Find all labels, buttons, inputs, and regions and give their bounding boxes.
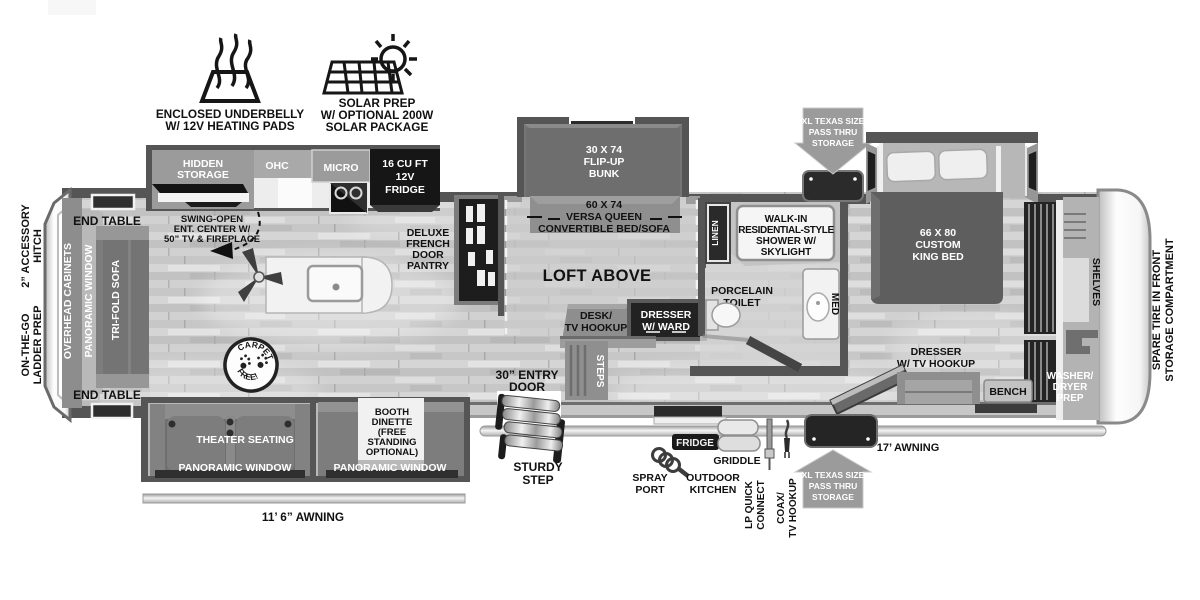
svg-text:PREP: PREP: [1056, 393, 1084, 404]
svg-text:OPTIONAL): OPTIONAL): [366, 447, 418, 458]
svg-text:DESK/: DESK/: [580, 310, 612, 322]
svg-text:FLIP-UP: FLIP-UP: [584, 156, 625, 168]
svg-text:16 CU FT: 16 CU FT: [382, 158, 428, 170]
svg-text:CONNECT: CONNECT: [756, 480, 767, 529]
svg-text:STORAGE COMPARTMENT: STORAGE COMPARTMENT: [1164, 238, 1176, 381]
svg-text:STEP: STEP: [522, 473, 553, 487]
svg-text:PASS THRU: PASS THRU: [809, 127, 858, 137]
svg-text:THEATER SEATING: THEATER SEATING: [196, 434, 294, 446]
svg-text:VERSA QUEEN: VERSA QUEEN: [566, 211, 642, 223]
svg-text:XL TEXAS SIZE: XL TEXAS SIZE: [802, 470, 865, 480]
svg-text:PORCELAIN: PORCELAIN: [711, 285, 773, 297]
svg-text:17’ AWNING: 17’ AWNING: [877, 442, 940, 454]
svg-text:STURDY: STURDY: [513, 460, 562, 474]
svg-text:END TABLE: END TABLE: [73, 214, 141, 228]
svg-text:STORAGE: STORAGE: [812, 138, 854, 148]
svg-text:FRIDGE: FRIDGE: [676, 438, 714, 449]
svg-text:XL TEXAS SIZE: XL TEXAS SIZE: [802, 116, 865, 126]
svg-text:SPARE TIRE IN FRONT: SPARE TIRE IN FRONT: [1151, 250, 1163, 370]
svg-text:HITCH: HITCH: [32, 229, 44, 263]
svg-text:LP QUICK: LP QUICK: [744, 480, 755, 528]
svg-text:ON-THE-GO: ON-THE-GO: [20, 313, 32, 376]
svg-text:COAX/: COAX/: [776, 492, 787, 524]
svg-text:SKYLIGHT: SKYLIGHT: [761, 247, 812, 258]
svg-text:STORAGE: STORAGE: [812, 492, 854, 502]
svg-text:W/ WARD: W/ WARD: [642, 321, 690, 333]
svg-text:PANORAMIC WINDOW: PANORAMIC WINDOW: [179, 462, 292, 474]
svg-text:LOFT ABOVE: LOFT ABOVE: [543, 267, 652, 285]
svg-text:30 X 74: 30 X 74: [586, 144, 622, 156]
svg-text:GRIDDLE: GRIDDLE: [713, 455, 760, 467]
svg-text:DRYER: DRYER: [1053, 382, 1088, 393]
svg-text:60 X 74: 60 X 74: [586, 199, 622, 211]
svg-text:TV HOOKUP: TV HOOKUP: [788, 478, 799, 538]
svg-text:END TABLE: END TABLE: [73, 388, 141, 402]
svg-text:SHOWER W/: SHOWER W/: [756, 236, 816, 247]
svg-text:PANORAMIC WINDOW: PANORAMIC WINDOW: [83, 244, 95, 357]
svg-text:CONVERTIBLE BED/SOFA: CONVERTIBLE BED/SOFA: [538, 223, 670, 235]
svg-text:11’ 6” AWNING: 11’ 6” AWNING: [262, 510, 344, 524]
svg-text:SPRAY: SPRAY: [632, 472, 667, 484]
svg-text:CUSTOM: CUSTOM: [915, 239, 961, 251]
svg-text:STORAGE: STORAGE: [177, 169, 229, 181]
svg-text:OHC: OHC: [265, 160, 289, 172]
svg-text:SOLAR PACKAGE: SOLAR PACKAGE: [326, 120, 429, 134]
svg-text:DRESSER: DRESSER: [911, 346, 962, 358]
svg-text:OVERHEAD CABINETS: OVERHEAD CABINETS: [62, 243, 74, 359]
svg-text:BUNK: BUNK: [589, 168, 620, 180]
svg-text:OUTDOOR: OUTDOOR: [686, 472, 740, 484]
svg-text:STEPS: STEPS: [594, 355, 605, 388]
svg-text:W/ TV HOOKUP: W/ TV HOOKUP: [897, 358, 975, 370]
svg-text:FRIDGE: FRIDGE: [385, 184, 425, 196]
svg-text:WALK-IN: WALK-IN: [765, 214, 808, 225]
svg-text:LINEN: LINEN: [710, 220, 720, 246]
svg-text:66 X 80: 66 X 80: [920, 227, 956, 239]
svg-text:WASHER/: WASHER/: [1047, 371, 1094, 382]
svg-text:TRI-FOLD SOFA: TRI-FOLD SOFA: [110, 259, 122, 340]
svg-text:PORT: PORT: [635, 484, 665, 496]
svg-text:PANORAMIC WINDOW: PANORAMIC WINDOW: [334, 462, 447, 474]
svg-text:TV HOOKUP: TV HOOKUP: [565, 322, 627, 334]
svg-text:LADDER PREP: LADDER PREP: [32, 306, 44, 385]
svg-text:MICRO: MICRO: [324, 162, 359, 174]
svg-text:RESIDENTIAL-STYLE: RESIDENTIAL-STYLE: [738, 225, 834, 236]
svg-text:SHELVES: SHELVES: [1090, 258, 1102, 306]
svg-text:KING BED: KING BED: [912, 251, 964, 263]
svg-text:2” ACCESSORY: 2” ACCESSORY: [20, 204, 32, 288]
svg-text:DRESSER: DRESSER: [641, 309, 692, 321]
svg-text:BENCH: BENCH: [989, 386, 1026, 398]
svg-text:DOOR: DOOR: [509, 380, 545, 394]
svg-text:W/ 12V HEATING PADS: W/ 12V HEATING PADS: [165, 119, 294, 133]
svg-text:PANTRY: PANTRY: [407, 260, 449, 272]
svg-text:MED: MED: [829, 293, 840, 315]
svg-text:PASS THRU: PASS THRU: [809, 481, 858, 491]
svg-text:KITCHEN: KITCHEN: [690, 484, 737, 496]
svg-text:12V: 12V: [396, 171, 415, 183]
